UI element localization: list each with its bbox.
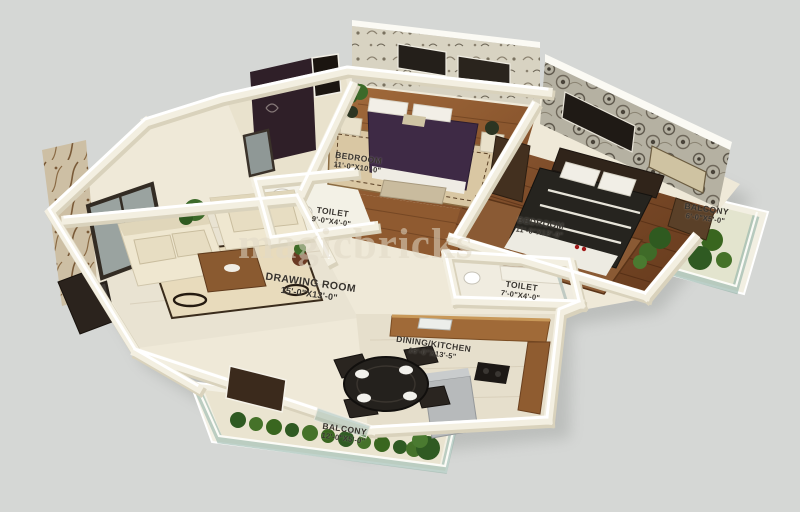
lobby-window [244, 130, 274, 176]
floor-plan-scene: magicbricks BEDROOM 11'-0"X10'-0" TOILET… [0, 0, 800, 512]
floor-plan-render [0, 0, 800, 512]
kitchen-sink [418, 318, 452, 330]
toilet-2-wc [464, 272, 480, 284]
